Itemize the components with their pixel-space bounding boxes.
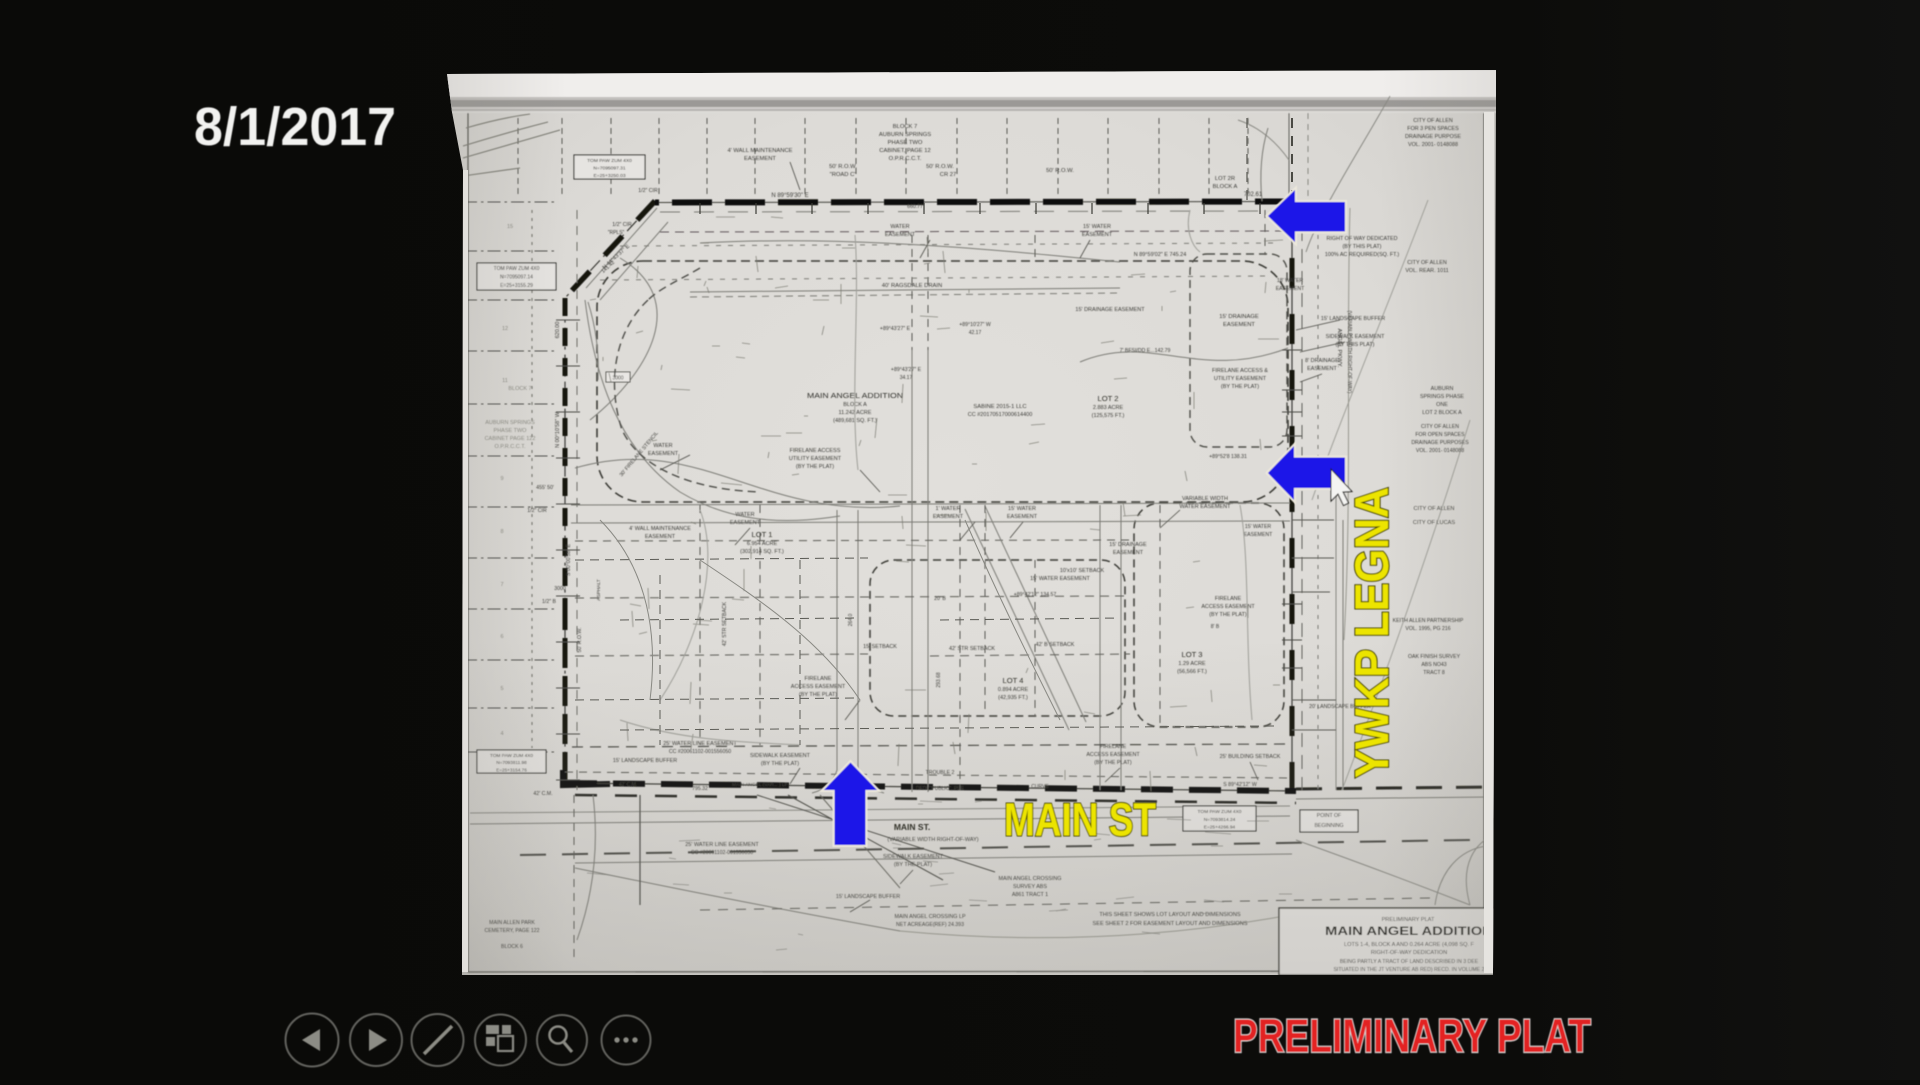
svg-text:FIRELANE ACCESS &: FIRELANE ACCESS & (1212, 368, 1268, 374)
svg-text:8' DRAINAGE: 8' DRAINAGE (1305, 358, 1339, 364)
svg-text:CR 27: CR 27 (940, 172, 956, 178)
svg-text:264.0: 264.0 (848, 614, 854, 627)
svg-text:SABINE 2015-1 LLC: SABINE 2015-1 LLC (973, 404, 1026, 410)
svg-text:AUBURN SPRINGS: AUBURN SPRINGS (879, 132, 931, 138)
svg-text:CC #20170517000614400: CC #20170517000614400 (968, 412, 1033, 418)
svg-text:660.77: 660.77 (907, 204, 923, 210)
svg-text:+89°43'27" E: +89°43'27" E (880, 326, 911, 332)
svg-text:EASEMENT: EASEMENT (1307, 366, 1337, 372)
svg-text:(BY THE PLAT): (BY THE PLAT) (1221, 384, 1259, 390)
svg-text:FIRELANE ACCESS: FIRELANE ACCESS (790, 448, 841, 454)
svg-text:+89°10'27" W: +89°10'27" W (959, 322, 991, 328)
svg-text:+89°52'8 138.31: +89°52'8 138.31 (1209, 454, 1247, 460)
svg-text:(302,914 SQ. FT.): (302,914 SQ. FT.) (740, 549, 784, 555)
svg-text:15' WATER EASEMENT: 15' WATER EASEMENT (1030, 576, 1090, 582)
svg-text:8' B: 8' B (1211, 624, 1220, 630)
svg-text:6.954 ACRE: 6.954 ACRE (747, 541, 778, 547)
svg-text:+89°43'27" E: +89°43'27" E (891, 367, 922, 373)
svg-text:42' STR SETBACK: 42' STR SETBACK (722, 601, 728, 646)
svg-text:15' WATER: 15' WATER (1245, 524, 1272, 530)
svg-text:42.17: 42.17 (969, 330, 982, 336)
svg-text:EASEMENT: EASEMENT (1007, 514, 1038, 520)
svg-text:15' WATER: 15' WATER (1083, 224, 1111, 230)
svg-text:50' R.O.W.: 50' R.O.W. (926, 164, 954, 170)
svg-text:EASEMENT: EASEMENT (1082, 232, 1113, 238)
svg-text:"ROAD C": "ROAD C" (830, 172, 857, 178)
svg-text:7' BFSI/DD E...142.79: 7' BFSI/DD E...142.79 (1120, 348, 1171, 354)
svg-text:PHASE TWO: PHASE TWO (888, 140, 923, 146)
svg-text:15' LANDSCAPE BUFFER: 15' LANDSCAPE BUFFER (1321, 316, 1385, 322)
svg-text:1' WATER: 1' WATER (936, 506, 961, 512)
svg-text:LOT 1: LOT 1 (752, 530, 773, 539)
svg-text:LOT 2R: LOT 2R (1215, 176, 1235, 182)
svg-text:YWKP LEGNA: YWKP LEGNA (1345, 487, 1398, 778)
svg-text:UTILITY EASEMENT: UTILITY EASEMENT (789, 456, 842, 462)
svg-text:BLOCK A: BLOCK A (1213, 184, 1238, 190)
svg-text:VARIABLE WIDTH: VARIABLE WIDTH (1182, 496, 1228, 502)
svg-text:N 89°59'02" E 745.24: N 89°59'02" E 745.24 (1134, 252, 1187, 258)
svg-text:N=7095097.31: N=7095097.31 (593, 166, 626, 172)
svg-text:N 89°59'30" E: N 89°59'30" E (771, 193, 808, 199)
svg-text:(BY THE PLAT): (BY THE PLAT) (796, 464, 834, 470)
svg-text:CABINET, PAGE 12: CABINET, PAGE 12 (879, 148, 930, 154)
svg-text:1/2" CIR: 1/2" CIR (612, 222, 632, 228)
svg-text:E=25+3250.03: E=25+3250.03 (593, 173, 625, 179)
svg-text:FIRELANE: FIRELANE (1215, 596, 1242, 602)
svg-text:(125,575 FT.): (125,575 FT.) (1092, 413, 1125, 419)
svg-text:8/1/2017: 8/1/2017 (194, 97, 396, 157)
svg-text:UTILITY EASEMENT: UTILITY EASEMENT (1214, 376, 1267, 382)
svg-text:LOT 2: LOT 2 (1098, 394, 1119, 403)
svg-text:WATER: WATER (653, 443, 672, 449)
svg-text:SIDEWALK EASEMENT: SIDEWALK EASEMENT (1326, 334, 1386, 340)
svg-text:PRELIMINARY PLAT: PRELIMINARY PLAT (1233, 1010, 1591, 1063)
svg-text:EASEMENT: EASEMENT (1276, 286, 1305, 292)
svg-text:15' WATER: 15' WATER (1008, 506, 1036, 512)
svg-text:34.17: 34.17 (900, 375, 913, 381)
svg-text:(VARIABLE WIDTH RIGHT-OF-WAY): (VARIABLE WIDTH RIGHT-OF-WAY) (1346, 311, 1352, 394)
svg-text:15' DRAINAGE: 15' DRAINAGE (1109, 542, 1147, 548)
svg-text:TOM PAW ZUM 4X0: TOM PAW ZUM 4X0 (587, 158, 632, 164)
svg-text:EASEMENT: EASEMENT (730, 520, 761, 526)
svg-text:1/2" CIR: 1/2" CIR (638, 188, 658, 194)
svg-text:WATER EASEMENT: WATER EASEMENT (1179, 504, 1231, 510)
svg-text:EASEMENT: EASEMENT (1244, 532, 1273, 538)
svg-text:ANGEL PKWY.: ANGEL PKWY. (1336, 329, 1342, 368)
svg-text:EASEMENT: EASEMENT (1223, 322, 1255, 328)
svg-text:WATER: WATER (735, 512, 754, 518)
svg-text:EASEMENT: EASEMENT (744, 156, 776, 162)
svg-text:50' R.O.W.: 50' R.O.W. (1046, 168, 1074, 174)
svg-text:EASEMENT: EASEMENT (648, 451, 679, 457)
svg-text:MAIN ST: MAIN ST (1004, 794, 1156, 846)
svg-text:2.883 ACRE: 2.883 ACRE (1093, 405, 1124, 411)
svg-text:EASEMENT: EASEMENT (645, 534, 676, 540)
svg-text:10'x10' SETBACK: 10'x10' SETBACK (1060, 568, 1105, 574)
svg-text:O.P.R.C.C.T.: O.P.R.C.C.T. (889, 156, 922, 162)
svg-text:50' R.O.W.: 50' R.O.W. (829, 164, 857, 170)
svg-text:18' WATER: 18' WATER (1277, 278, 1304, 284)
svg-text:4' WALL MAINTENANCE: 4' WALL MAINTENANCE (727, 148, 792, 154)
svg-text:4' WALL MAINTENANCE: 4' WALL MAINTENANCE (629, 526, 691, 532)
svg-text:WATER: WATER (890, 224, 909, 230)
svg-text:EASEMENT: EASEMENT (1113, 550, 1144, 556)
svg-text:BLOCK 7: BLOCK 7 (893, 124, 918, 130)
svg-text:(BY THIS PLAT): (BY THIS PLAT) (1343, 244, 1382, 250)
svg-text:EASEMENT: EASEMENT (885, 232, 916, 238)
svg-text:"RPLS": "RPLS" (608, 230, 625, 236)
svg-text:15' DRAINAGE EASEMENT: 15' DRAINAGE EASEMENT (1075, 307, 1145, 313)
svg-text:(BY THE PLAT): (BY THE PLAT) (1209, 612, 1247, 618)
svg-text:15' DRAINAGE: 15' DRAINAGE (1219, 314, 1259, 320)
